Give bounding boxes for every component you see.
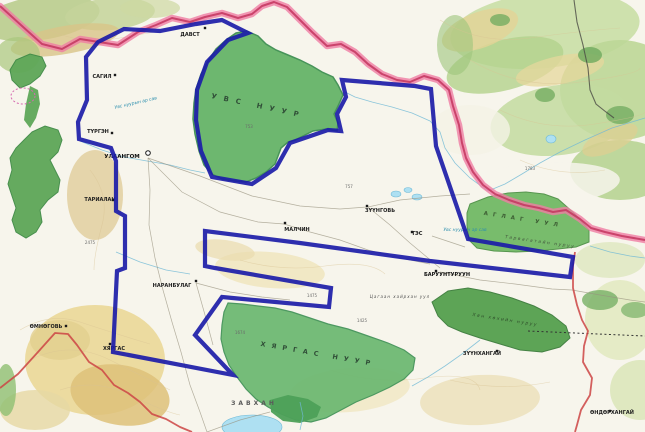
map-label: ЗҮҮНГОВЬ (365, 208, 395, 214)
map-label: МАЛЧИН (284, 227, 309, 233)
settlement-marker (284, 222, 286, 224)
map-label: БАРУУНТУРУУН (424, 272, 470, 278)
spot-height: 753 (245, 124, 253, 129)
settlement-marker (109, 343, 111, 345)
small-lake (546, 135, 556, 143)
terrain-patch (437, 15, 473, 75)
settlement-marker (195, 280, 197, 282)
spot-height: 1475 (307, 293, 318, 298)
map-label: Цагаан хайрхан уул (370, 294, 430, 299)
map-label: ТЭС (412, 231, 423, 237)
settlement-marker (114, 74, 116, 76)
city-marker-ulaangom (146, 151, 151, 156)
settlement-marker (65, 325, 67, 327)
map-label: ТҮРГЭН (87, 129, 109, 135)
terrain-patch (490, 14, 510, 26)
terrain-patch (430, 105, 510, 155)
map-label: ТАРИАЛАН (84, 197, 115, 203)
terrain-patch (535, 88, 555, 102)
map-label: ЗҮҮНХАНГАЙ (463, 349, 501, 357)
map-label: ӨНДӨРХАНГАЙ (590, 408, 634, 416)
map-label: ЗАВХАН (231, 400, 277, 407)
settlement-marker (366, 205, 368, 207)
terrain-patch (578, 47, 602, 63)
terrain-patch (575, 242, 645, 278)
small-lake (404, 188, 412, 193)
map-label: УЛААНГОМ (104, 154, 140, 160)
map-label: САГИЛ (92, 74, 111, 80)
spot-height: 757 (345, 184, 353, 189)
topographic-map: УВС НУУРХЯРГАС НУУРАГЛАГ УУЛТарвагатайн … (0, 0, 645, 432)
map-canvas: УВС НУУРХЯРГАС НУУРАГЛАГ УУЛТарвагатайн … (0, 0, 645, 432)
settlement-marker (204, 27, 206, 29)
spot-height: 2475 (85, 240, 96, 245)
spot-height: 1674 (235, 330, 246, 335)
small-lake (391, 191, 401, 197)
settlement-marker (111, 132, 113, 134)
map-label: ДАВСТ (180, 32, 200, 38)
map-label: НАРАНБУЛАГ (153, 283, 192, 289)
spot-height: 1425 (357, 318, 368, 323)
small-lake (412, 194, 422, 200)
spot-height: 1783 (525, 166, 536, 171)
map-label: ӨМНӨГОВЬ (30, 324, 63, 330)
